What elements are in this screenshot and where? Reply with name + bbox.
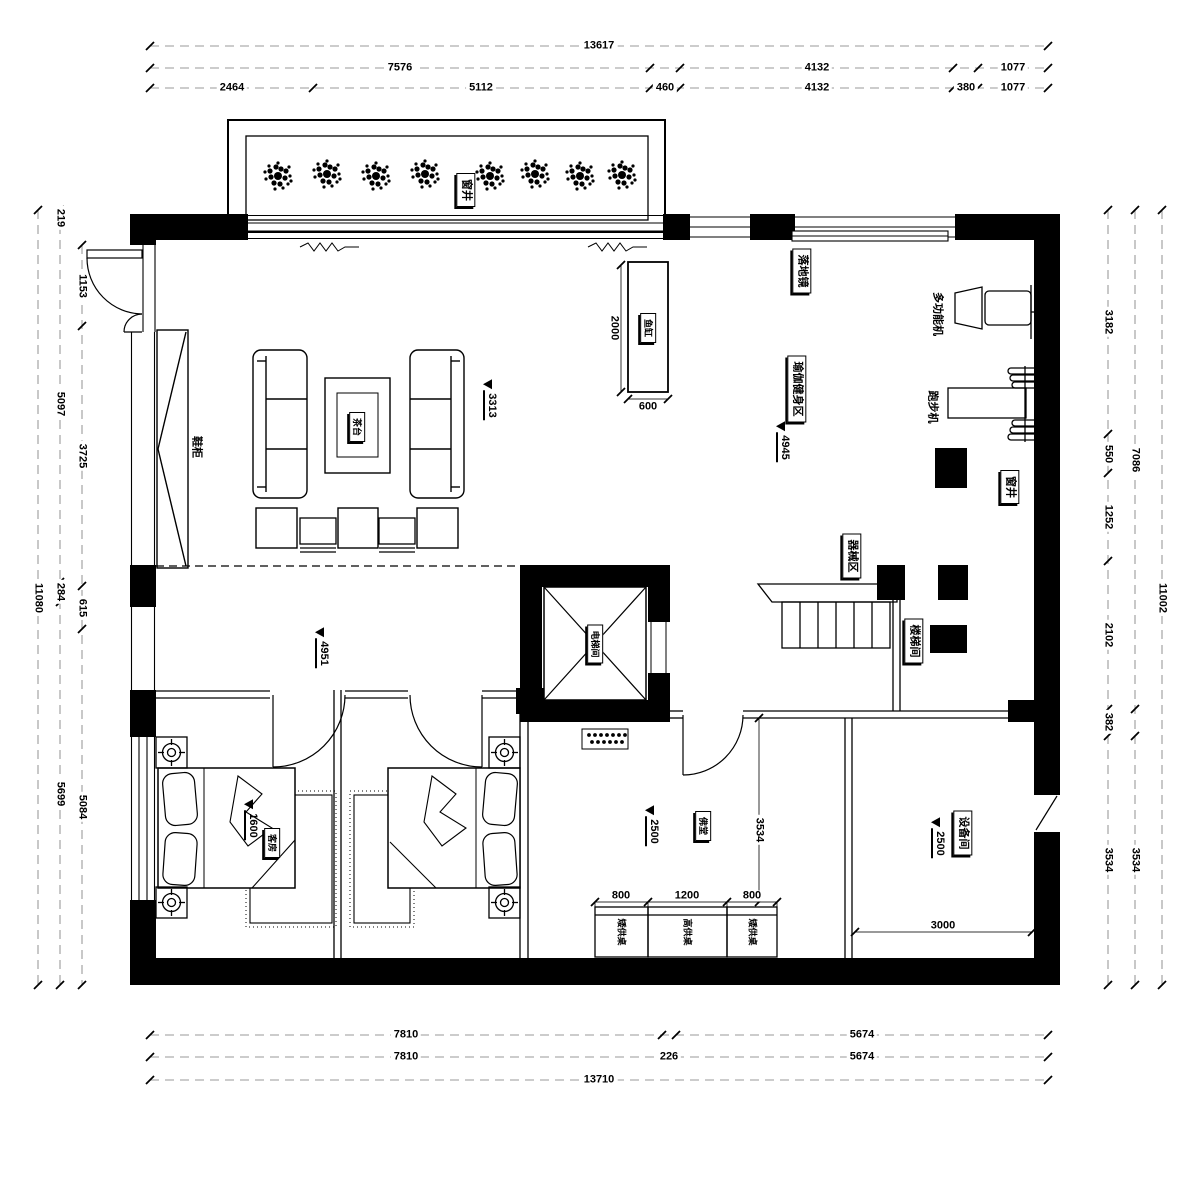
chair-1 [300, 518, 336, 552]
label-window-well-top: 窗井 [457, 173, 476, 207]
label-equipment-room: 设备间 [954, 811, 973, 856]
doors [87, 250, 1057, 830]
dim-bot2-1: 7810 [391, 1052, 421, 1063]
dim-li-1: 1153 [77, 271, 88, 301]
dimension-ticks [34, 42, 1166, 1084]
label-low-altar-left: 矮供桌 [617, 916, 626, 947]
label-buddha-hall: 佛堂 [695, 811, 711, 841]
dim-right-total: 11002 [1157, 580, 1168, 616]
dim-ri-2: 550 [1103, 442, 1114, 466]
dim-lm-4: 5699 [55, 779, 66, 809]
dim-left-total: 11080 [33, 580, 44, 616]
dim-bot2-3: 5674 [847, 1052, 877, 1063]
dim-top3-6: 1077 [998, 83, 1028, 94]
sofa-left [253, 350, 307, 498]
multi-gym-machine [955, 285, 1041, 339]
level-triangle-icon [645, 805, 654, 815]
label-fish-tank: 鱼缸 [640, 313, 656, 343]
label-shoe-cabinet: 鞋柜 [191, 434, 202, 460]
marker-yoga: 4945 [776, 421, 790, 462]
label-floor-mirror: 落地镜 [793, 249, 812, 294]
dim-fish-tank-w: 600 [636, 402, 660, 413]
elevator-call-panel [582, 729, 628, 749]
floor-mirror [792, 231, 948, 241]
dim-li-3: 615 [77, 596, 88, 620]
dim-ri-5: 382 [1103, 710, 1114, 734]
marker-living: 3313 [483, 379, 497, 420]
label-yoga-area: 瑜伽健身区 [788, 356, 807, 423]
dim-top2-3: 1077 [998, 63, 1028, 74]
label-equipment-zone: 器械区 [843, 534, 862, 579]
chair-2 [379, 518, 415, 552]
dim-lm-2: 5097 [55, 389, 66, 419]
floor-plan-drawing [0, 0, 1200, 1194]
floor-plan: 13617 7576 4132 1077 2464 5112 460 4132 … [0, 0, 1200, 1194]
label-window-well-right: 窗井 [1001, 470, 1020, 504]
level-triangle-icon [483, 379, 492, 389]
dim-rm-2: 3534 [1130, 845, 1141, 875]
dim-bot-total: 13710 [581, 1075, 618, 1086]
marker-hall: 4951 [315, 627, 329, 668]
dim-li-2: 3725 [77, 441, 88, 471]
marker-buddha-hall: 2500 [645, 805, 659, 846]
dim-li-4: 5084 [77, 792, 88, 822]
label-tea-table: 茶台 [349, 412, 365, 442]
shoe-cabinet [157, 330, 188, 568]
dim-lm-1: 219 [55, 206, 66, 230]
bedroom-right [350, 737, 520, 927]
level-triangle-icon [244, 799, 253, 809]
dim-ri-6: 3534 [1103, 845, 1114, 875]
dim-ri-1: 3182 [1103, 307, 1114, 337]
level-triangle-icon [776, 421, 785, 431]
dim-ri-3: 1252 [1103, 502, 1114, 532]
label-multi-gym: 多功能机 [932, 290, 943, 338]
dimension-chains [38, 46, 1162, 1080]
dim-top2-1: 7576 [385, 63, 415, 74]
dim-altar-3: 800 [740, 891, 764, 902]
label-high-altar: 高供桌 [683, 916, 692, 947]
label-stair-room: 楼梯间 [905, 619, 924, 664]
dim-altar-2: 1200 [672, 891, 702, 902]
dim-top3-5: 380 [954, 83, 978, 94]
dim-rm-1: 7086 [1130, 445, 1141, 475]
dim-lm-3: 284 [55, 580, 66, 604]
level-triangle-icon [315, 627, 324, 637]
dim-top2-2: 4132 [802, 63, 832, 74]
level-triangle-icon [931, 817, 940, 827]
stools [256, 508, 458, 548]
dim-top3-2: 5112 [466, 83, 496, 94]
label-treadmill: 跑步机 [927, 389, 938, 426]
dim-bot1-2: 5674 [847, 1030, 877, 1041]
label-elevator-room: 电梯间 [587, 624, 603, 663]
dim-bot2-2: 226 [657, 1052, 681, 1063]
window-break-marks [300, 243, 647, 251]
dim-top3-1: 2464 [217, 83, 247, 94]
dim-fish-tank-h: 2000 [609, 313, 620, 343]
marker-equipment-room: 2500 [931, 817, 945, 858]
dim-bot1-1: 7810 [391, 1030, 421, 1041]
label-low-altar-right: 矮供桌 [748, 916, 757, 947]
plants [263, 159, 636, 190]
stairs [758, 584, 897, 648]
dim-equipment-w: 3000 [928, 921, 958, 932]
treadmill-machine [948, 366, 1042, 442]
dim-top3-4: 4132 [802, 83, 832, 94]
dim-altar-1: 800 [609, 891, 633, 902]
marker-guest-room: 1600 [244, 799, 258, 840]
dim-top-total: 13617 [581, 41, 618, 52]
dim-buddha-depth: 3534 [754, 815, 765, 845]
sofa-right [410, 350, 464, 498]
dim-top3-3: 460 [653, 83, 677, 94]
dim-ri-4: 2102 [1103, 620, 1114, 650]
label-guest-room: 客房 [264, 828, 280, 858]
